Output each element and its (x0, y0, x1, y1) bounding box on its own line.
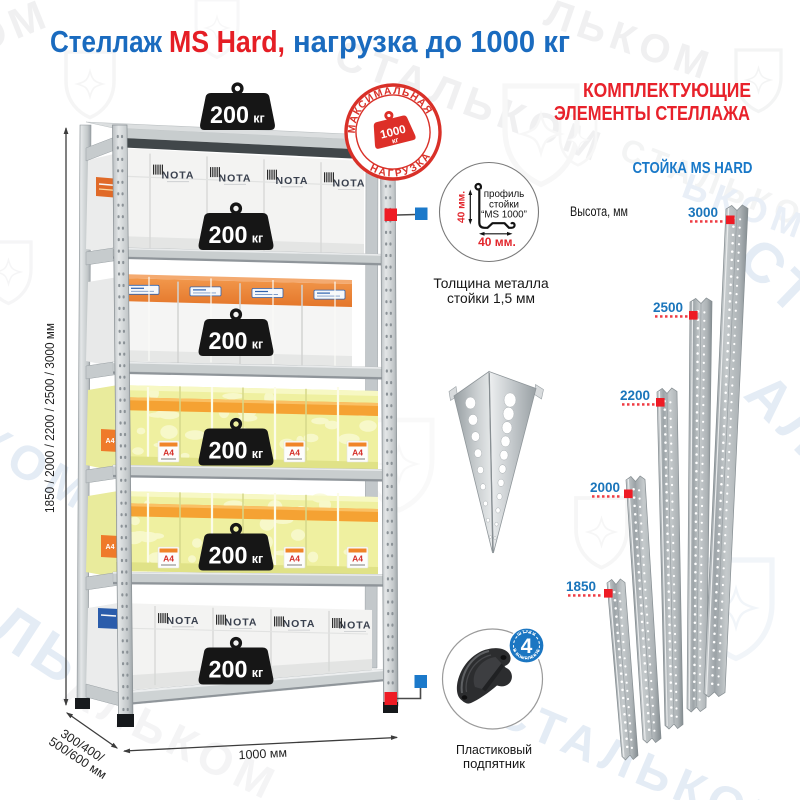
svg-text:A4: A4 (289, 448, 300, 458)
svg-text:A4: A4 (163, 448, 174, 458)
svg-text:NOTA: NOTA (276, 175, 309, 187)
svg-text:2200: 2200 (620, 388, 650, 403)
svg-text:подпятник: подпятник (463, 756, 525, 771)
svg-text:2000: 2000 (590, 480, 620, 495)
svg-text:ЭЛЕМЕНТЫ СТЕЛЛАЖА: ЭЛЕМЕНТЫ СТЕЛЛАЖА (554, 102, 750, 125)
svg-text:NOTA: NOTA (339, 620, 372, 632)
svg-text:Пластиковый: Пластиковый (456, 742, 532, 757)
svg-text:Высота, мм: Высота, мм (570, 204, 628, 219)
svg-text:СТОЙКА MS HARD: СТОЙКА MS HARD (633, 159, 753, 177)
svg-text:стойки 1,5 мм: стойки 1,5 мм (447, 291, 535, 306)
svg-text:2500: 2500 (653, 300, 683, 315)
svg-text:A4: A4 (106, 438, 115, 445)
svg-text:1850 / 2000 / 2200 / 2500 / 30: 1850 / 2000 / 2200 / 2500 / 3000 мм (43, 323, 57, 513)
svg-text:40 мм.: 40 мм. (457, 191, 468, 223)
svg-text:1000 мм: 1000 мм (238, 746, 287, 763)
svg-text:профиль: профиль (484, 189, 525, 200)
svg-text:NOTA: NOTA (333, 177, 366, 189)
svg-text:3000: 3000 (688, 205, 718, 220)
svg-text:A4: A4 (352, 448, 363, 458)
svg-text:NOTA: NOTA (225, 616, 258, 628)
svg-text:Стеллаж: Стеллаж (50, 24, 163, 59)
svg-text:ОМ: ОМ (0, 0, 57, 62)
svg-text:NOTA: NOTA (162, 170, 195, 182)
svg-text:A4: A4 (106, 544, 115, 551)
svg-text:MS Hard,: MS Hard, (169, 24, 285, 59)
svg-text:“MS 1000”: “MS 1000” (481, 210, 527, 221)
svg-text:A4: A4 (163, 554, 174, 564)
svg-text:NOTA: NOTA (219, 172, 252, 184)
svg-text:40 мм.: 40 мм. (478, 235, 516, 249)
svg-text:A4: A4 (289, 554, 300, 564)
svg-text:NOTA: NOTA (283, 618, 316, 630)
svg-text:АЛЬ: АЛЬ (733, 361, 800, 505)
svg-text:нагрузка до 1000 кг: нагрузка до 1000 кг (293, 24, 570, 59)
svg-text:1850: 1850 (566, 579, 596, 594)
svg-text:A4: A4 (352, 554, 363, 564)
svg-text:КОМПЛЕКТУЮЩИЕ: КОМПЛЕКТУЮЩИЕ (583, 79, 751, 102)
svg-text:NOTA: NOTA (167, 615, 200, 627)
svg-text:Толщина металла: Толщина металла (433, 276, 549, 291)
